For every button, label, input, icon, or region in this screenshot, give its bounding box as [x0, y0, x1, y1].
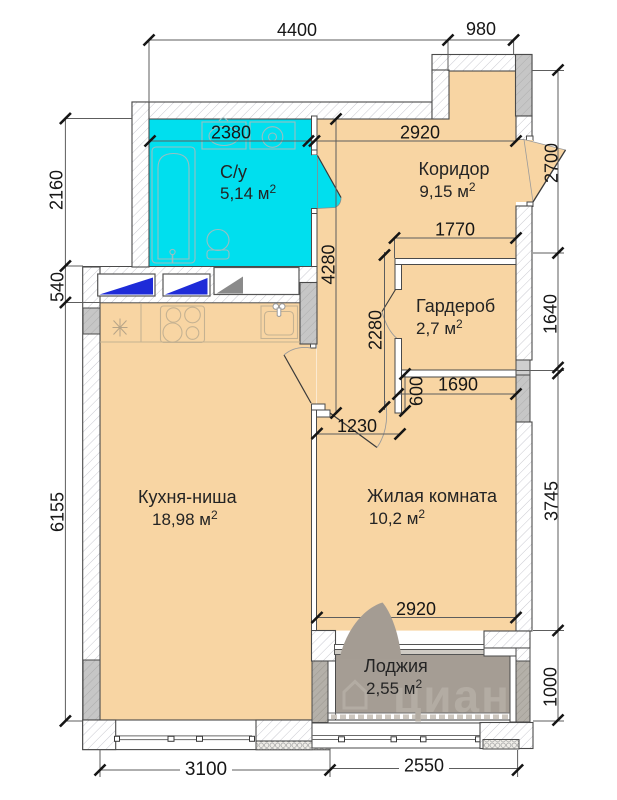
svg-text:1770: 1770 — [435, 220, 475, 240]
svg-text:2160: 2160 — [47, 170, 67, 210]
svg-text:1640: 1640 — [541, 294, 561, 334]
svg-text:540: 540 — [48, 272, 68, 302]
svg-text:Лоджия: Лоджия — [364, 656, 428, 676]
svg-text:2550: 2550 — [404, 756, 444, 776]
svg-text:Гардероб: Гардероб — [416, 296, 495, 316]
svg-text:18,98 м2: 18,98 м2 — [152, 508, 218, 529]
svg-text:2380: 2380 — [211, 123, 251, 143]
svg-text:5,14 м2: 5,14 м2 — [220, 182, 277, 203]
svg-text:Жилая комната: Жилая комната — [367, 486, 498, 506]
svg-text:2280: 2280 — [366, 310, 386, 350]
svg-text:9,15 м2: 9,15 м2 — [419, 180, 476, 201]
svg-text:3745: 3745 — [542, 481, 562, 521]
svg-text:4400: 4400 — [277, 20, 317, 40]
svg-text:2920: 2920 — [400, 123, 440, 143]
svg-text:2920: 2920 — [396, 599, 436, 619]
svg-text:Коридор: Коридор — [418, 159, 489, 179]
svg-text:1000: 1000 — [541, 667, 561, 707]
svg-text:2,55 м2: 2,55 м2 — [366, 677, 423, 698]
svg-text:Кухня-ниша: Кухня-ниша — [138, 487, 238, 507]
svg-text:2,7 м2: 2,7 м2 — [416, 317, 463, 338]
svg-text:600: 600 — [407, 376, 427, 406]
svg-text:980: 980 — [466, 19, 496, 39]
svg-text:4280: 4280 — [319, 244, 339, 284]
svg-text:10,2 м2: 10,2 м2 — [369, 507, 426, 528]
svg-text:1230: 1230 — [337, 416, 377, 436]
svg-text:6155: 6155 — [48, 492, 68, 532]
svg-text:2700: 2700 — [542, 143, 562, 183]
svg-text:С/у: С/у — [220, 162, 247, 182]
svg-text:3100: 3100 — [185, 759, 227, 780]
svg-text:1690: 1690 — [438, 375, 478, 395]
